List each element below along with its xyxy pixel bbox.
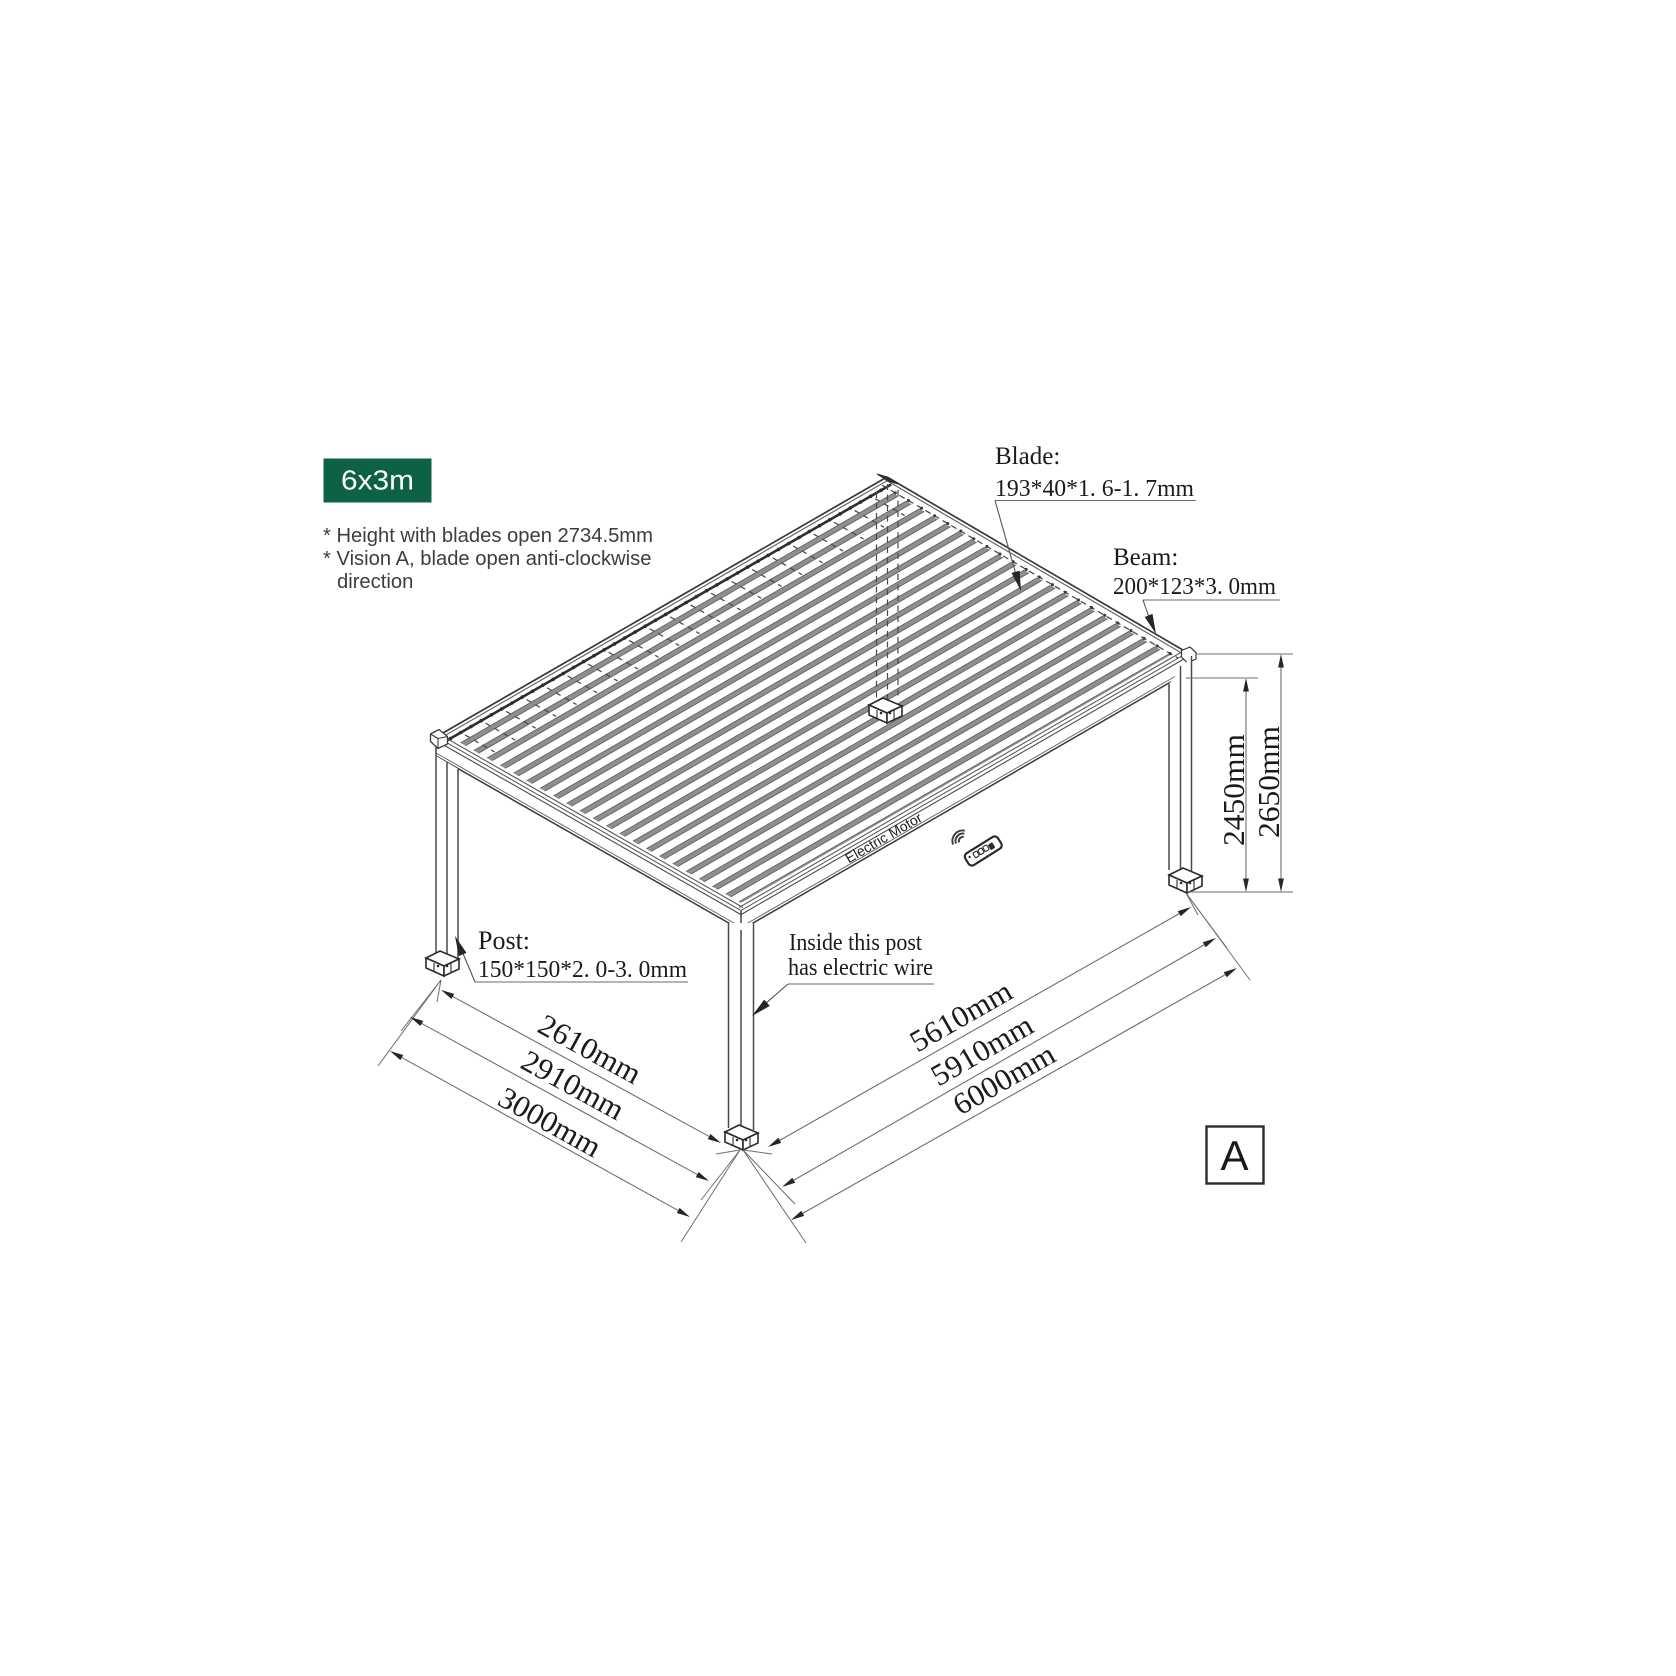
svg-text:direction: direction — [337, 571, 413, 593]
svg-text:Blade:: Blade: — [995, 443, 1060, 470]
svg-text:has electric wire: has electric wire — [788, 955, 933, 981]
svg-text:A: A — [1220, 1132, 1248, 1179]
svg-text:Inside this post: Inside this post — [789, 930, 922, 956]
svg-text:* Vision A, blade open anti-cl: * Vision A, blade open anti-clockwise — [323, 548, 651, 570]
svg-text:200*123*3. 0mm: 200*123*3. 0mm — [1113, 573, 1276, 600]
svg-text:Post:: Post: — [478, 926, 530, 955]
svg-text:2450mm: 2450mm — [1217, 734, 1251, 846]
svg-text:193*40*1. 6-1. 7mm: 193*40*1. 6-1. 7mm — [995, 475, 1194, 502]
svg-text:150*150*2. 0-3. 0mm: 150*150*2. 0-3. 0mm — [478, 956, 687, 983]
svg-text:Beam:: Beam: — [1113, 544, 1178, 571]
svg-text:2650mm: 2650mm — [1252, 726, 1286, 838]
svg-text:* Height with blades open 2734: * Height with blades open 2734.5mm — [323, 525, 653, 547]
svg-text:6x3m: 6x3m — [341, 465, 414, 496]
